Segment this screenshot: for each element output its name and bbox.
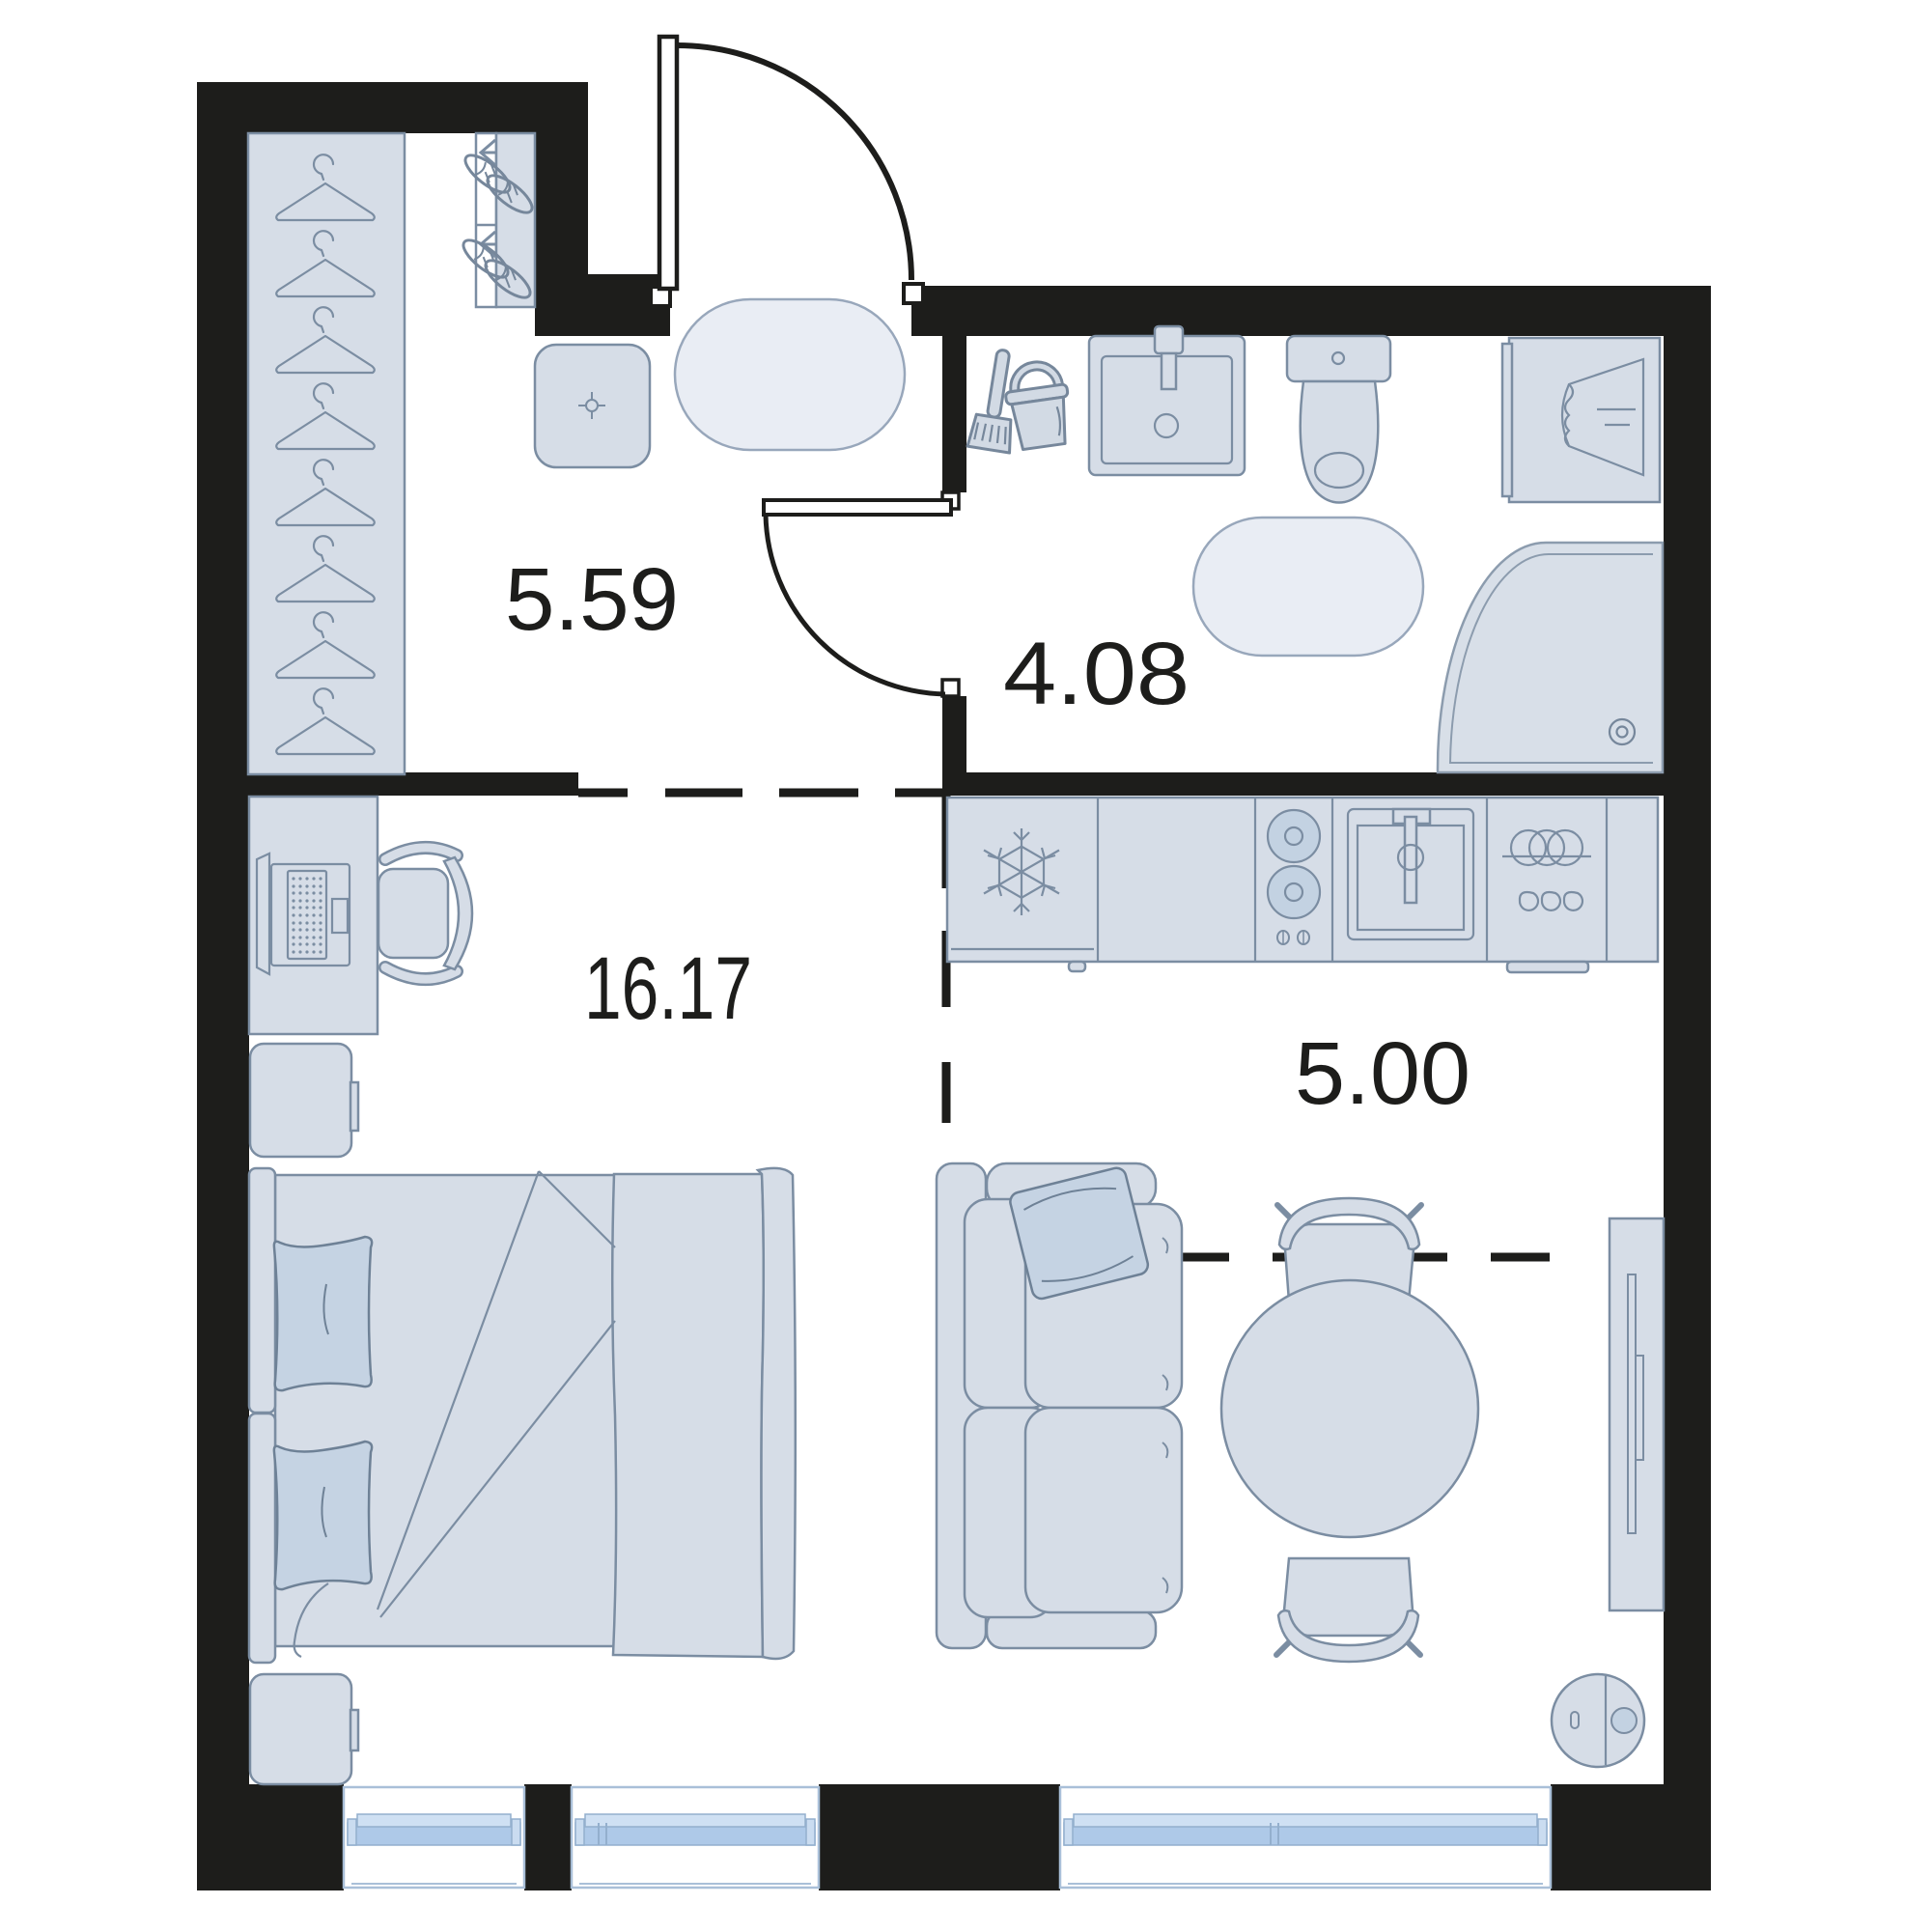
svg-text:4.08: 4.08 <box>1003 625 1190 723</box>
svg-text:5.00: 5.00 <box>1295 1024 1470 1123</box>
svg-text:5.59: 5.59 <box>505 550 679 649</box>
svg-text:16.17: 16.17 <box>584 939 752 1038</box>
